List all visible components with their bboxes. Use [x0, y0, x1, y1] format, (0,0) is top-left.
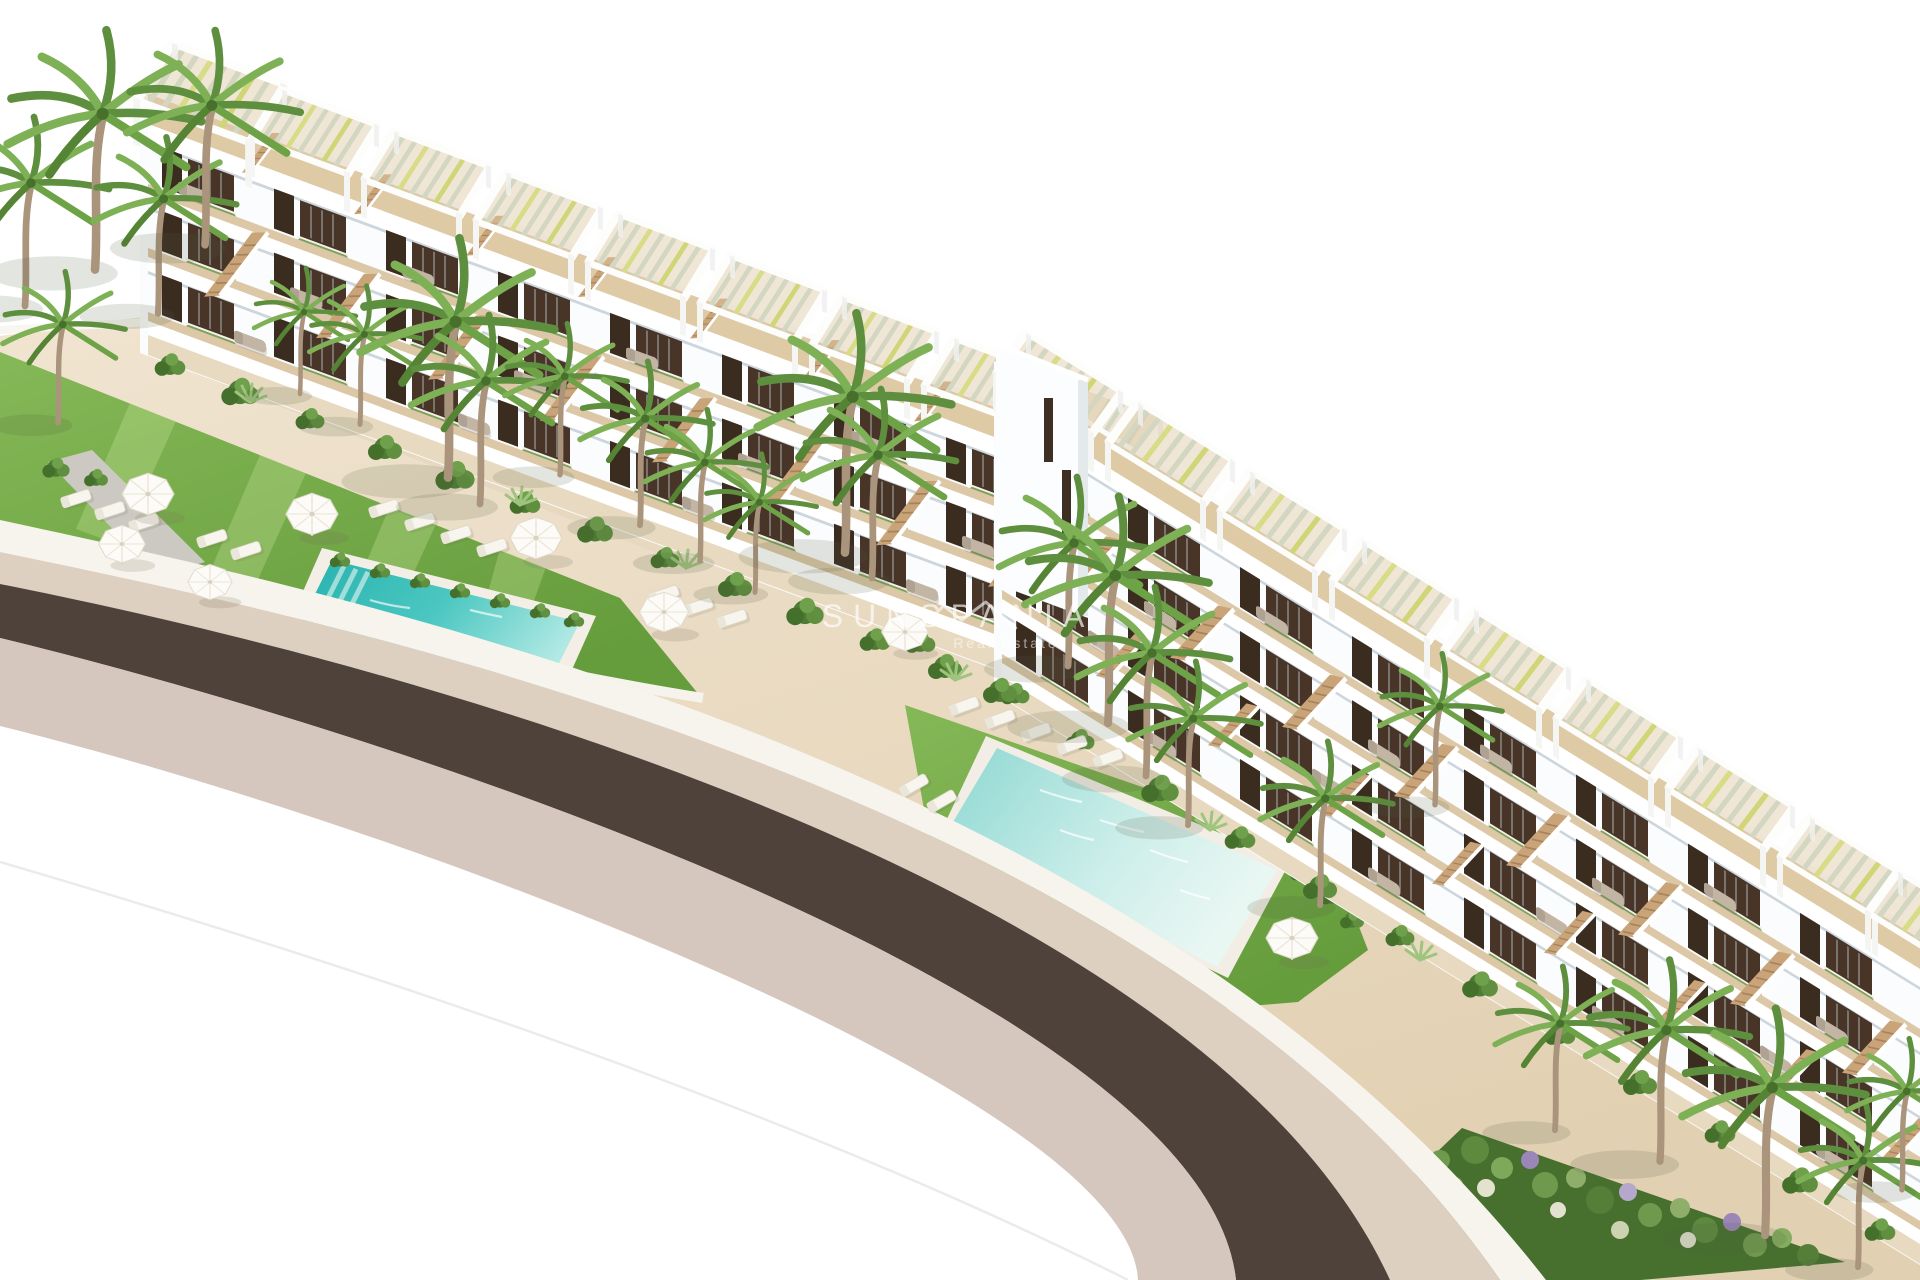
aerial-render-image: SUNSPANIA Real Estate [0, 0, 1920, 1280]
render-canvas [0, 0, 1920, 1280]
